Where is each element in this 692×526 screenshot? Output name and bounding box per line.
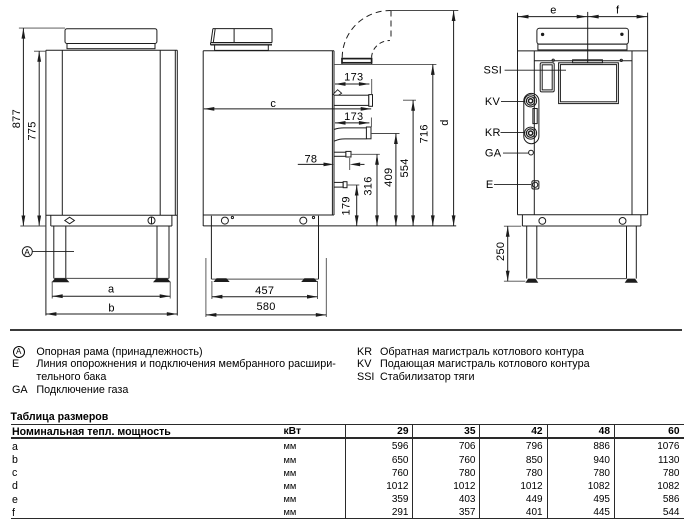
svg-text:250: 250	[495, 242, 507, 261]
svg-text:a: a	[108, 283, 115, 295]
svg-text:775: 775	[27, 121, 39, 140]
svg-text:877: 877	[11, 109, 23, 128]
svg-text:179: 179	[340, 196, 352, 215]
svg-text:78: 78	[304, 153, 317, 165]
svg-text:409: 409	[383, 168, 395, 187]
svg-text:GA: GA	[485, 148, 502, 160]
svg-text:173: 173	[344, 72, 363, 84]
svg-text:b: b	[108, 302, 114, 314]
svg-text:d: d	[439, 119, 451, 125]
svg-text:KR: KR	[485, 127, 501, 139]
svg-text:e: e	[550, 4, 556, 16]
svg-text:716: 716	[418, 124, 430, 143]
svg-text:KV: KV	[485, 96, 501, 108]
svg-text:A: A	[24, 247, 30, 257]
svg-text:E: E	[486, 179, 494, 191]
svg-text:554: 554	[399, 158, 411, 177]
svg-text:580: 580	[256, 301, 275, 313]
svg-text:316: 316	[363, 176, 375, 195]
svg-text:c: c	[270, 98, 276, 110]
svg-text:457: 457	[255, 285, 274, 297]
svg-text:173: 173	[344, 111, 363, 123]
svg-text:f: f	[616, 4, 620, 16]
svg-text:SSI: SSI	[484, 64, 503, 76]
